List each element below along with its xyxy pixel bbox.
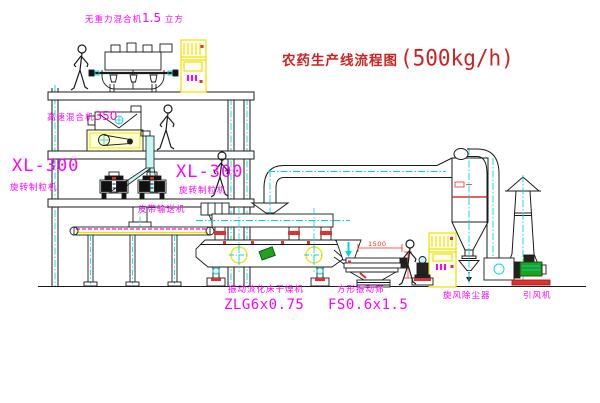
process-flow-drawing: 农药生产线流程图 (500kg/h) 无重力混合机1.5 立方 高速混合机350…	[0, 0, 600, 403]
label-granulator-left-model: XL-300	[12, 156, 79, 176]
person-second-floor	[157, 105, 174, 150]
title-capacity: (500kg/h)	[400, 45, 514, 70]
label-fan: 引风机	[523, 292, 552, 301]
label-high-speed-mixer: 高速混合机350	[47, 110, 117, 123]
label-sieve-name: 方形振动筛	[337, 286, 385, 295]
gravity-free-mixer	[89, 43, 178, 92]
induced-draft-fan	[484, 255, 550, 285]
label-granulator-mid-model: XL-300	[176, 162, 243, 182]
label-dryer-model: ZLG6x0.75	[224, 297, 304, 313]
label-granulator-left-name: 旋转制粒机	[10, 184, 58, 193]
dimension-sieve-width: 1500	[368, 240, 387, 248]
granulator-left-unit	[100, 172, 128, 199]
drawing-title: 农药生产线流程图 (500kg/h)	[282, 46, 514, 70]
conveyor-supports	[84, 235, 181, 286]
label-gravity-free-mixer: 无重力混合机1.5 立方	[85, 12, 184, 25]
label-granulator-mid-name: 旋转制粒机	[179, 187, 227, 196]
label-dryer-name: 振动流化床干燥机	[228, 286, 304, 295]
label-belt-conveyor: 皮带输送机	[138, 206, 186, 215]
control-cabinet-top	[181, 40, 206, 92]
floor-slab-top	[48, 92, 254, 100]
belt-conveyor	[70, 227, 214, 286]
label-cyclone: 旋风除尘器	[443, 292, 491, 301]
person-top-floor	[71, 45, 88, 90]
fluid-bed-dryer	[196, 208, 350, 286]
label-sieve-model: FS0.6x1.5	[328, 297, 408, 313]
dryer-legs	[207, 267, 329, 286]
title-chinese: 农药生产线流程图	[282, 49, 398, 69]
